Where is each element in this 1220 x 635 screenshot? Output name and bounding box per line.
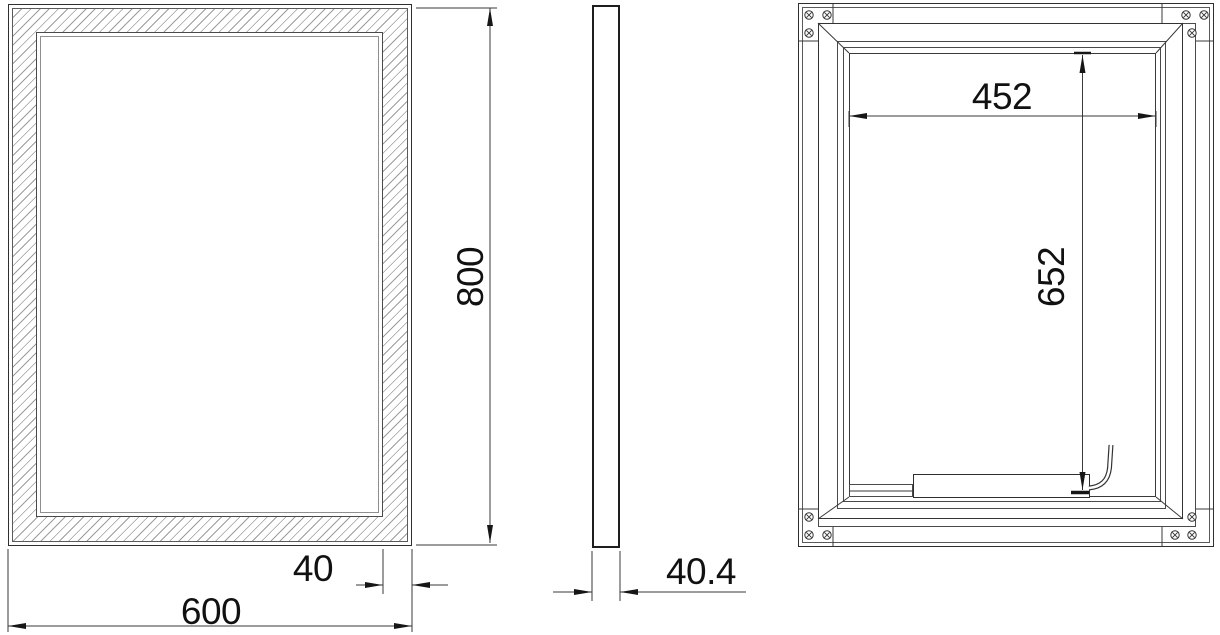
screw-icon (1188, 513, 1196, 521)
screw-icon (823, 531, 831, 539)
front-height-dim-label: 800 (452, 212, 490, 342)
screw-icon (805, 29, 813, 37)
side-extension-lines (592, 551, 620, 601)
arrowhead (487, 8, 493, 26)
screw-icon (805, 513, 813, 521)
arrowhead (1080, 472, 1086, 490)
arrowhead (394, 623, 412, 629)
arrowhead (8, 623, 26, 629)
front-frame-width-dim-label: 40 (263, 550, 363, 587)
screw-icon (805, 11, 813, 19)
screw-icon (1182, 11, 1190, 19)
arrowhead (487, 525, 493, 543)
arrowhead (365, 582, 383, 588)
back-inner-height-dim-label: 652 (1033, 212, 1071, 342)
screw-icon (1188, 531, 1196, 539)
arrowhead (574, 589, 592, 595)
screw-icon (823, 11, 831, 19)
back-inner-width-dim-label: 452 (942, 78, 1062, 115)
screw-icon (1171, 531, 1179, 539)
technical-drawing-canvas: 600 800 40 40.4 452 652 (0, 0, 1220, 635)
screw-icon (805, 531, 813, 539)
arrowhead (849, 113, 867, 119)
power-cord-icon (1089, 445, 1111, 488)
arrowhead (412, 582, 430, 588)
screw-icon (1200, 11, 1208, 19)
arrowhead (1080, 55, 1086, 73)
screw-icon (1188, 29, 1196, 37)
arrowhead (1138, 113, 1156, 119)
side-thickness-dim-label: 40.4 (631, 553, 771, 590)
front-width-dim-label: 600 (146, 593, 276, 630)
